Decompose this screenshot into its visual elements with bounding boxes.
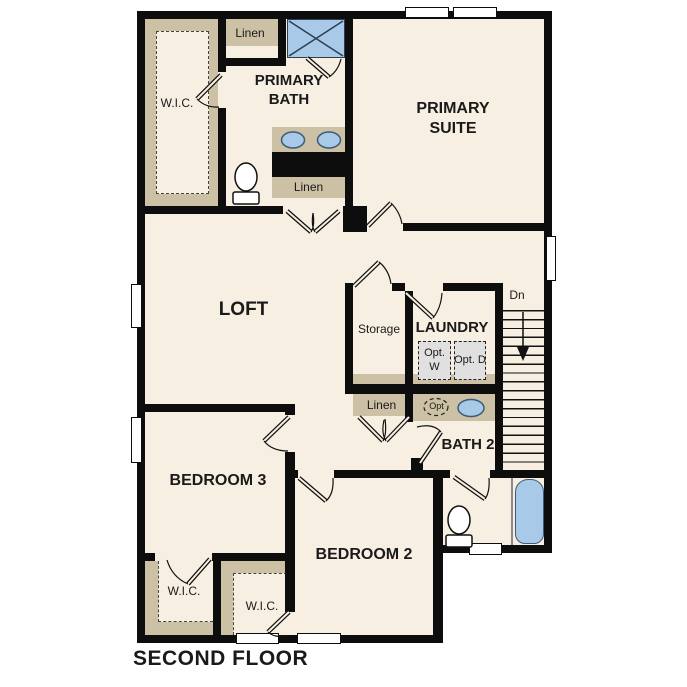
stairs-down-arrow xyxy=(517,312,529,361)
label-laundry: LAUNDRY xyxy=(406,319,498,337)
floor-plan-page: Linen PRIMARY BATH W.I.C. Linen PRIMARY … xyxy=(0,0,687,687)
label-optional-washer: Opt. W xyxy=(418,343,451,378)
label-bedroom2: BEDROOM 2 xyxy=(298,545,430,565)
label-bedroom3: BEDROOM 3 xyxy=(148,471,288,491)
bath2-toilet-icon xyxy=(446,506,472,547)
primary-toilet-icon xyxy=(233,163,259,204)
label-loft: LOFT xyxy=(196,296,291,323)
label-linen-primary-bath: Linen xyxy=(272,179,345,196)
label-optional-dryer: Opt. D xyxy=(454,343,486,378)
label-bath2: BATH 2 xyxy=(436,436,500,454)
doors-and-fixtures-overlay xyxy=(0,0,687,687)
label-wic-primary: W.I.C. xyxy=(147,96,207,110)
label-optional-sink: Opt xyxy=(424,401,449,413)
label-primary-bath: PRIMARY BATH xyxy=(244,70,334,112)
shower-x-icon xyxy=(289,21,343,56)
label-wic-bedroom3: W.I.C. xyxy=(158,584,210,599)
floor-title: SECOND FLOOR xyxy=(133,645,383,673)
label-primary-suite: PRIMARY SUITE xyxy=(398,96,508,142)
label-linen-upper: Linen xyxy=(222,21,278,45)
label-storage: Storage xyxy=(348,321,410,337)
primary-sink-icons xyxy=(282,132,341,148)
label-linen-hall: Linen xyxy=(353,395,410,415)
label-stairs-down: Dn xyxy=(503,287,531,303)
label-wic-bedroom2: W.I.C. xyxy=(236,599,288,614)
